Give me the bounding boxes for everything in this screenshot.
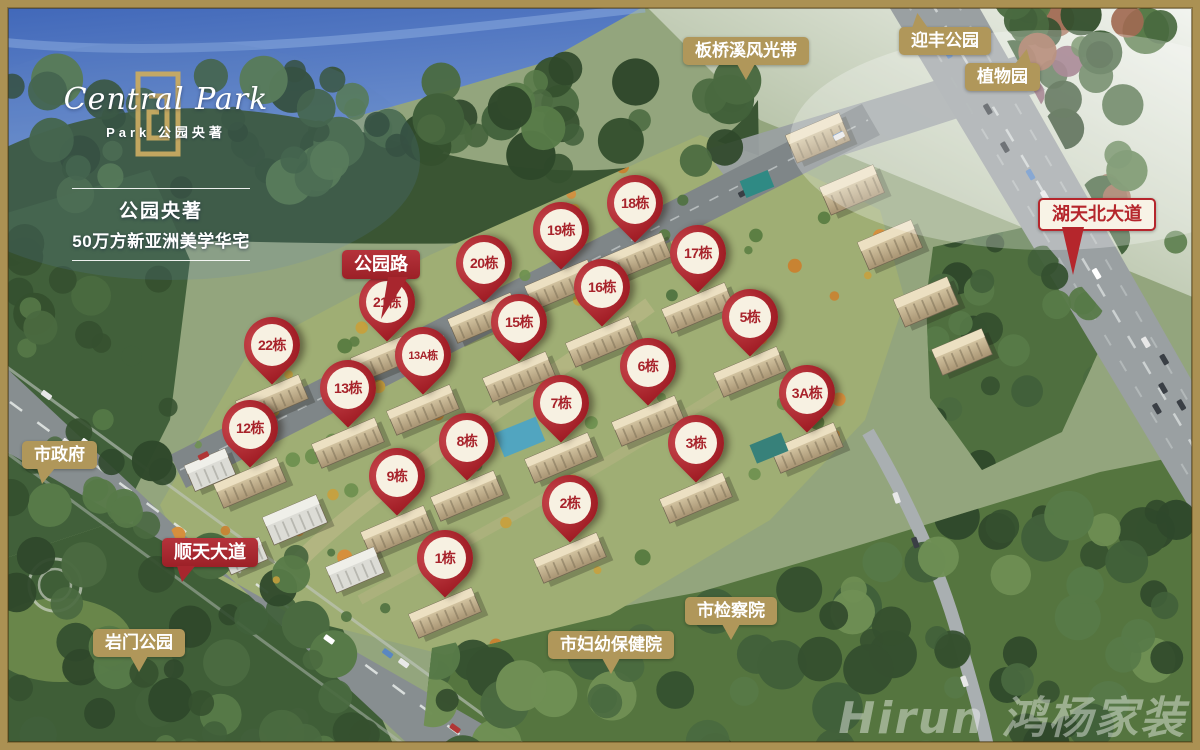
brand-subtitle: Park 公园央著 [68,122,264,141]
pin-label: 20栋 [463,242,505,284]
label-pointer-icon [737,64,755,80]
building-pin-2栋: 2栋 [542,475,598,551]
watermark: Hirun 鸿杨家装 [838,682,1186,746]
pin-label: 15栋 [498,301,540,343]
pin-label: 7栋 [540,382,582,424]
location-label-6: 市政府 [22,441,97,469]
building-pin-3A栋: 3A栋 [779,365,835,441]
pin-label: 6栋 [627,345,669,387]
pin-label: 13栋 [327,367,369,409]
label-pointer-icon [173,566,195,582]
building-pin-22栋: 22栋 [244,317,300,393]
location-label-4: 湖天北大道 [1038,198,1156,231]
annotation-overlay: Central Park Park 公园央著 公园央著 50万方新亚洲美学华宅 … [0,0,1200,750]
building-pin-13栋: 13栋 [320,360,376,436]
location-label-text: 公园路 [354,254,408,274]
location-label-text: 植物园 [977,67,1028,86]
location-label-text: 顺天大道 [174,542,246,562]
pin-label: 13A栋 [402,334,444,376]
building-pin-18栋: 18栋 [607,175,663,251]
location-label-text: 板桥溪风光带 [695,41,797,60]
building-pin-17栋: 17栋 [670,225,726,301]
location-label-3: 植物园 [965,63,1040,91]
pin-label: 8栋 [446,420,488,462]
building-pin-7栋: 7栋 [533,375,589,451]
building-pin-13A栋: 13A栋 [395,327,451,403]
tagline-line1: 公园央著 [72,196,250,223]
pin-label: 5栋 [729,296,771,338]
building-pin-5栋: 5栋 [722,289,778,365]
location-label-text: 岩门公园 [105,633,173,652]
brand-logo: Central Park Park 公园央著 [78,62,253,162]
building-pin-1栋: 1栋 [417,530,473,606]
building-pin-3栋: 3栋 [668,415,724,491]
tagline-line2: 50万方新亚洲美学华宅 [72,227,250,252]
location-label-text: 市妇幼保健院 [560,635,662,654]
building-pin-16栋: 16栋 [574,259,630,335]
pin-label: 9栋 [376,455,418,497]
pin-label: 3A栋 [786,372,828,414]
pin-label: 2栋 [549,482,591,524]
location-label-8: 岩门公园 [93,629,185,657]
location-label-2: 迎丰公园 [899,27,991,55]
label-pointer-icon [602,658,620,674]
label-pointer-icon [722,624,740,640]
label-pointer-icon [33,468,55,484]
building-pin-8栋: 8栋 [439,413,495,489]
pin-label: 18栋 [614,182,656,224]
pin-label: 12栋 [229,407,271,449]
location-label-text: 市政府 [34,445,85,464]
pin-label: 16栋 [581,266,623,308]
location-label-text: 湖天北大道 [1052,204,1142,224]
label-pointer-icon [130,656,148,672]
project-tagline: 公园央著 50万方新亚洲美学华宅 [72,188,250,261]
building-pin-6栋: 6栋 [620,338,676,414]
building-pin-15栋: 15栋 [491,294,547,370]
location-label-5: 公园路 [342,250,420,279]
location-label-7: 顺天大道 [162,538,258,567]
location-label-10: 市检察院 [685,597,777,625]
pin-label: 1栋 [424,537,466,579]
label-pointer-icon [1015,49,1035,64]
label-pointer-icon [909,13,928,28]
location-label-text: 市检察院 [697,601,765,620]
location-label-1: 板桥溪风光带 [683,37,809,65]
building-pin-12栋: 12栋 [222,400,278,476]
pin-label: 3栋 [675,422,717,464]
label-pointer-icon [1062,227,1084,275]
location-label-9: 市妇幼保健院 [548,631,674,659]
location-label-text: 迎丰公园 [911,31,979,50]
building-pin-9栋: 9栋 [369,448,425,524]
poster-canvas: Central Park Park 公园央著 公园央著 50万方新亚洲美学华宅 … [0,0,1200,750]
pin-label: 19栋 [540,209,582,251]
pin-label: 17栋 [677,232,719,274]
pin-label: 22栋 [251,324,293,366]
brand-wordmark: Central Park [60,82,272,117]
